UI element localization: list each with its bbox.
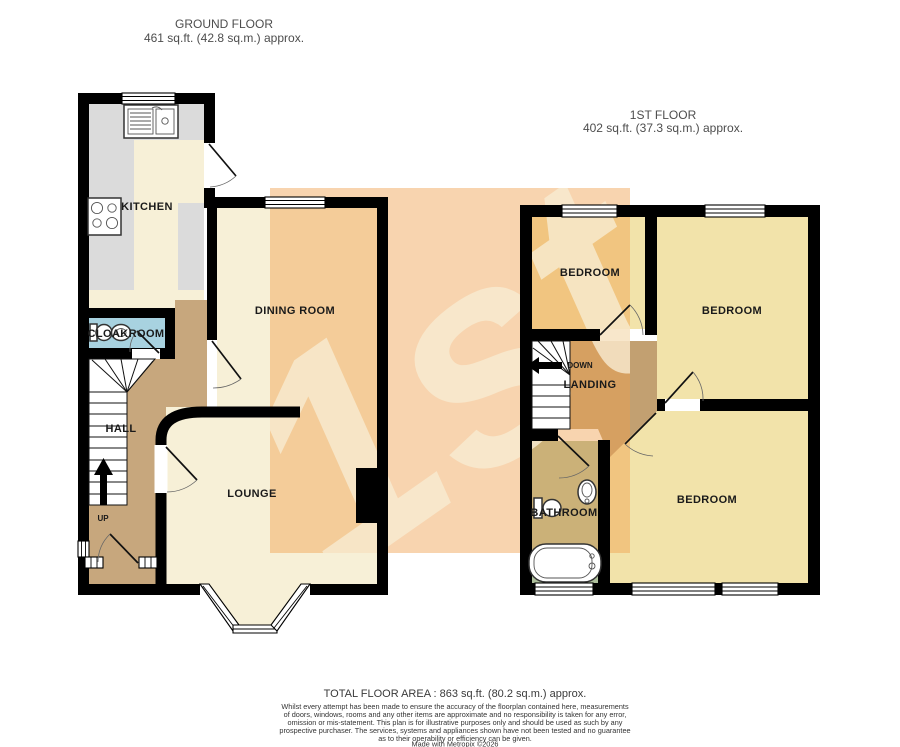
plan-headers: GROUND FLOOR 461 sq.ft. (42.8 sq.m.) app… (144, 17, 743, 135)
up-label: UP (97, 514, 109, 523)
hall-label: HALL (106, 423, 137, 435)
ground-floor-title: GROUND FLOOR (175, 17, 273, 31)
floorplan-canvas: 1st (0, 0, 900, 747)
kitchen-window-icon (122, 93, 175, 104)
bath-basin-icon (578, 480, 596, 504)
sink-icon (124, 105, 178, 138)
chimney-breast (356, 468, 377, 523)
bedroom-back-window-icon (705, 205, 765, 217)
bathtub-icon (529, 544, 601, 582)
first-floor-area: 402 sq.ft. (37.3 sq.m.) approx. (583, 121, 743, 135)
hob-icon (88, 198, 121, 235)
back-door (204, 143, 236, 188)
kitchen-counter-right (178, 203, 204, 290)
first-floor-title: 1ST FLOOR (630, 108, 697, 122)
hall-side-window-icon (78, 541, 89, 557)
floorplan-page: 1st (0, 0, 900, 747)
kitchen-label: KITCHEN (121, 201, 173, 213)
landing-label: LANDING (564, 379, 617, 391)
bedroom-front-window-icon (562, 205, 617, 217)
dining-label: DINING ROOM (255, 305, 335, 317)
ground-floor-area: 461 sq.ft. (42.8 sq.m.) approx. (144, 31, 304, 45)
lounge-label: LOUNGE (227, 488, 276, 500)
down-label: DOWN (567, 361, 593, 370)
bedroom-large-label: BEDROOM (677, 494, 737, 506)
dining-window-icon (265, 197, 325, 208)
total-floor-area: TOTAL FLOOR AREA : 863 sq.ft. (80.2 sq.m… (324, 688, 587, 700)
footer: TOTAL FLOOR AREA : 863 sq.ft. (80.2 sq.m… (279, 688, 630, 747)
bedroom-large-window-left-icon (632, 583, 715, 595)
bedroom-large-window-right-icon (722, 583, 778, 595)
metropix-credit: Made with Metropix ©2026 (412, 740, 499, 747)
bathroom-label: BATHROOM (530, 507, 597, 519)
cloakroom-label: CLOAKROOM (88, 328, 165, 340)
bedroom-front-label: BEDROOM (560, 267, 620, 279)
bathroom-window-icon (535, 583, 593, 595)
bedroom-back-label: BEDROOM (702, 305, 762, 317)
